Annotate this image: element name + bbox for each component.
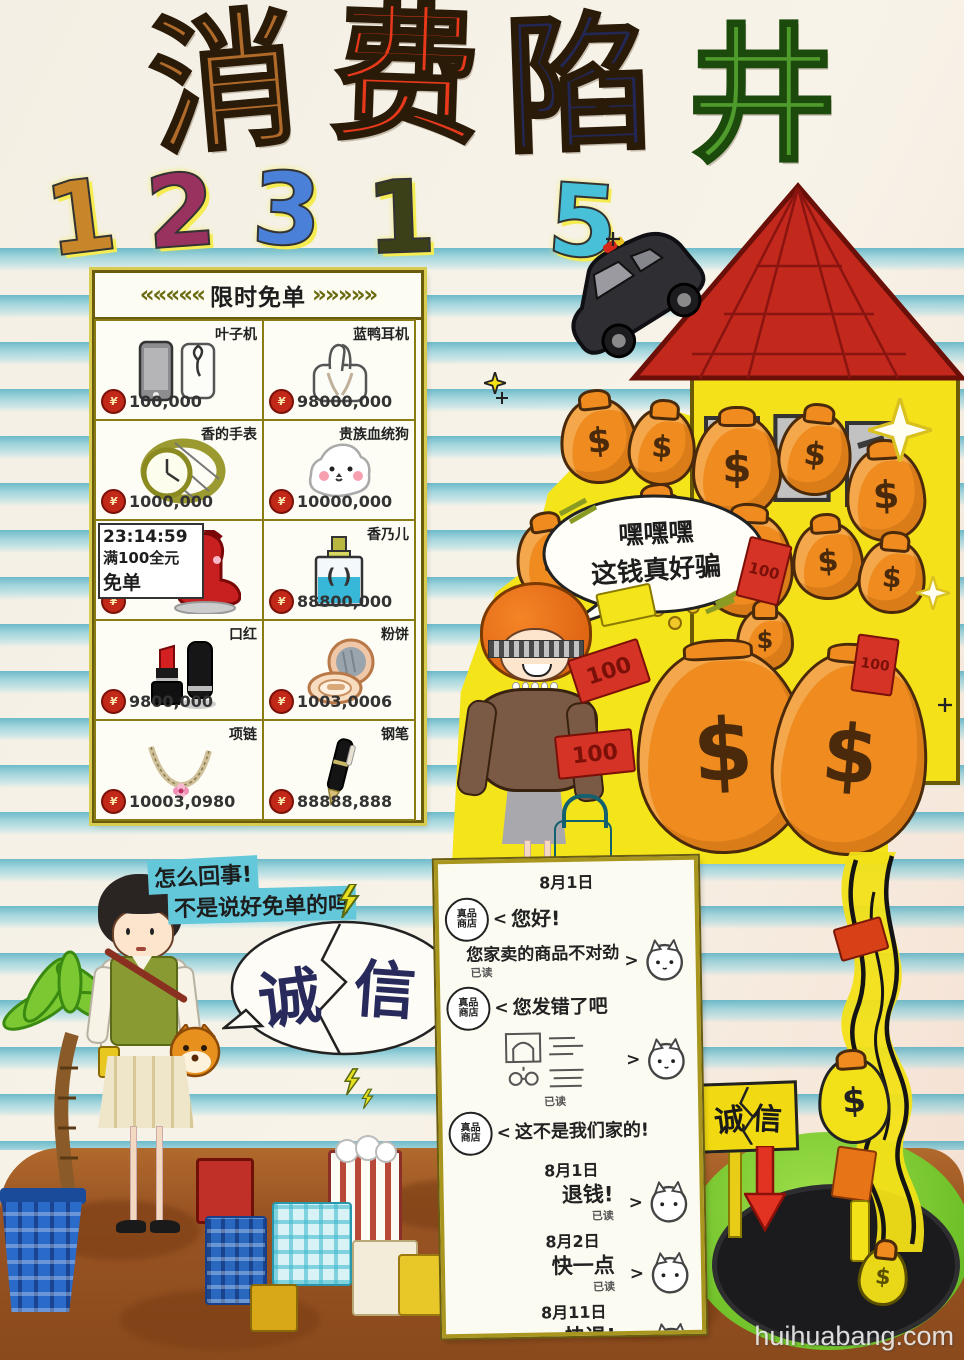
dollar-sign: $ xyxy=(818,705,882,802)
chevron-right: > xyxy=(626,1050,641,1070)
yuan-symbol: ¥ xyxy=(278,395,286,408)
dollar-sign: $ xyxy=(881,560,903,595)
victim-eye xyxy=(126,928,130,935)
cat-avatar-icon xyxy=(645,1038,688,1081)
chat-row-user: 退钱! 已读 > xyxy=(450,1181,691,1227)
sign-post xyxy=(728,1140,742,1238)
flash-sale-title: 限时免单 xyxy=(210,278,306,312)
poster-canvas: 消 费 陷 井 1 2 3 1 5 $ $ $ $ $ $ $ $ $ xyxy=(0,0,964,1360)
hotline-digit-1: 1 xyxy=(40,164,121,272)
read-receipt: 已读 xyxy=(470,965,492,981)
item-price: 88888,888 xyxy=(297,792,392,811)
sale-item-lipstick: 口红 ¥9800,000 xyxy=(94,619,264,721)
chat-row-shop: 真品 商店 < 这不是我们家的! xyxy=(448,1108,693,1156)
banknote-value: 100 xyxy=(859,655,890,675)
victim-skirt xyxy=(98,1056,194,1128)
victim-face xyxy=(112,908,174,960)
chat-date: 8月2日 xyxy=(450,1226,694,1254)
lightning-icon xyxy=(360,1088,375,1110)
victim-eye xyxy=(150,928,154,935)
shop-avatar: 真品 商店 xyxy=(446,986,491,1031)
item-price: 10000,000 xyxy=(297,492,392,511)
chat-msg-not-ours: 这不是我们家的! xyxy=(515,1121,650,1143)
yuan-symbol: ¥ xyxy=(278,595,286,608)
coin-icon: ¥ xyxy=(101,489,126,514)
chat-msg-wrong: 您发错了吧 xyxy=(513,996,608,1019)
countdown-timer: 23:14:59 xyxy=(103,527,199,547)
victim-leg xyxy=(130,1126,137,1226)
watermark: huihuabang.com xyxy=(754,1321,954,1352)
title-char-2: 费 xyxy=(329,0,482,153)
item-name: 钢笔 xyxy=(381,724,409,744)
yuan-symbol: ¥ xyxy=(110,695,118,708)
gift-box-mustard xyxy=(250,1284,298,1332)
arrows-left: ««««« xyxy=(140,282,204,308)
sign-crack xyxy=(738,1087,758,1146)
flash-sale-table: ««««« 限时免单 »»»»» 叶子机 ¥100,000 蓝鸭耳机 xyxy=(92,270,424,823)
item-name: 项链 xyxy=(229,724,257,744)
banknote-value: 100 xyxy=(571,739,619,769)
lightning-icon xyxy=(342,1068,362,1096)
shop-avatar: 真品 商店 xyxy=(445,897,490,942)
title-char-4: 井 xyxy=(688,22,836,170)
dollar-sign: $ xyxy=(691,700,756,803)
gift-box-cyan-plaid xyxy=(272,1202,352,1286)
item-price: 10003,0980 xyxy=(129,792,235,811)
cat-avatar-icon xyxy=(643,939,686,982)
chevron-right: > xyxy=(630,1264,645,1284)
down-arrow xyxy=(744,1146,786,1234)
chat-date: 8月1日 xyxy=(449,1155,693,1183)
title-char-3: 陷 xyxy=(502,9,655,162)
chat-date: 8月1日 xyxy=(444,867,688,895)
hotline-digit-4: 1 xyxy=(364,167,437,269)
hotline-digit-2: 2 xyxy=(143,160,219,265)
chevron-left: < xyxy=(494,998,509,1018)
lightning-icon xyxy=(336,884,362,918)
coin-icon: ¥ xyxy=(269,589,294,614)
integrity-char-left: 诚 xyxy=(253,945,326,1042)
integrity-char-right: 信 xyxy=(351,938,419,1032)
chat-msg-hurry: 快一点 xyxy=(552,1255,615,1279)
banknote-100: 100 xyxy=(554,728,636,780)
scammer-eye-band xyxy=(488,640,584,658)
dollar-sign: $ xyxy=(722,443,751,492)
title-char-1: 消 xyxy=(144,4,304,164)
coin-icon: ¥ xyxy=(269,689,294,714)
chat-row-user: 您家卖的商品不对劲 已读 > xyxy=(445,939,686,985)
item-price: 100,000 xyxy=(129,392,202,411)
chevron-left: < xyxy=(496,1123,511,1143)
item-name: 粉饼 xyxy=(381,624,409,644)
sale-item-free-timer: 23:14:59 满100全元 免单 ¥ xyxy=(94,519,264,621)
shop-avatar: 真品 商店 xyxy=(448,1111,493,1156)
dollar-sign: $ xyxy=(585,420,613,462)
shop-avatar-text: 商店 xyxy=(457,920,477,930)
item-price: 98000,000 xyxy=(297,392,392,411)
item-name: 口红 xyxy=(229,624,257,644)
flash-sale-header: ««««« 限时免单 »»»»» xyxy=(95,273,421,320)
chat-date: 8月11日 xyxy=(452,1297,696,1325)
sale-item-perfume: 香乃儿 ( ) ¥88800,000 xyxy=(262,519,416,621)
sale-item-powder: 粉饼 ¥1003,0006 xyxy=(262,619,416,721)
hotline-digit-3: 3 xyxy=(250,159,323,261)
shop-avatar-text: 商店 xyxy=(458,1009,478,1019)
sale-item-phone: 叶子机 ¥100,000 xyxy=(94,319,264,421)
yuan-symbol: ¥ xyxy=(278,695,286,708)
sale-item-necklace: 项链 ¥10003,0980 xyxy=(94,719,264,821)
dollar-sign: $ xyxy=(874,1264,892,1290)
victim-shoe xyxy=(116,1220,146,1233)
countdown-condition: 满100全元 xyxy=(103,547,199,568)
plaid-flowerpot xyxy=(2,1202,82,1312)
money-stream xyxy=(796,852,964,1262)
chat-msg-hello: 您好! xyxy=(511,907,561,930)
read-receipt: 已读 xyxy=(592,1207,614,1223)
chat-msg-refund: 退钱! xyxy=(562,1184,614,1208)
dollar-sign: $ xyxy=(841,1080,867,1122)
cat-avatar-icon xyxy=(647,1181,690,1224)
coin-icon: ¥ xyxy=(269,389,294,414)
dollar-sign: $ xyxy=(816,543,839,579)
chevron-left: < xyxy=(493,909,508,929)
sale-item-dog: 贵族血统狗 ¥10000,000 xyxy=(262,419,416,521)
victim-shoe xyxy=(150,1220,180,1233)
dollar-sign: $ xyxy=(872,472,901,517)
sale-item-watch: 香的手表 ¥1000,000 xyxy=(94,419,264,521)
chevron-right: > xyxy=(628,1193,643,1213)
coin-icon: ¥ xyxy=(101,689,126,714)
chat-msg-complaint: 您家卖的商品不对劲 xyxy=(466,944,619,965)
chat-row-shop: 真品 商店 < 您发错了吧 xyxy=(446,983,691,1031)
coin-icon: ¥ xyxy=(269,489,294,514)
chat-row-shop: 真品 商店 < 您好! xyxy=(445,894,690,942)
yuan-symbol: ¥ xyxy=(110,795,118,808)
coin-icon: ¥ xyxy=(101,789,126,814)
banknote-value: 100 xyxy=(747,558,782,583)
product-photo-sketches xyxy=(503,1029,622,1093)
dollar-sign: $ xyxy=(650,429,673,465)
victim-mouth xyxy=(136,947,146,951)
broken-integrity-bubble: 诚 信 xyxy=(222,916,460,1066)
falling-banknote xyxy=(831,1145,878,1202)
chat-complaint-paper: 8月1日 真品 商店 < 您好! 您家卖的商品不对劲 已读 > xyxy=(434,856,706,1339)
banknote-100: 100 xyxy=(850,633,900,696)
countdown-box: 23:14:59 满100全元 免单 xyxy=(98,523,204,599)
read-receipt: 已读 xyxy=(544,1091,692,1110)
yuan-symbol: ¥ xyxy=(278,795,286,808)
yuan-symbol: ¥ xyxy=(110,395,118,408)
victim-leg xyxy=(156,1126,163,1226)
flash-sale-grid: 叶子机 ¥100,000 蓝鸭耳机 ¥98000,000 xyxy=(95,320,421,820)
shop-avatar-text: 商店 xyxy=(461,1134,481,1144)
item-price: 1000,000 xyxy=(129,492,213,511)
victim-bangs xyxy=(108,894,174,914)
read-receipt: 已读 xyxy=(593,1278,615,1294)
integrity-sign: 诚 信 xyxy=(697,1080,799,1153)
coin-icon: ¥ xyxy=(269,789,294,814)
perfume-logo: ( ) xyxy=(326,564,351,588)
cat-avatar-icon xyxy=(649,1252,692,1295)
sale-item-earbuds: 蓝鸭耳机 ¥98000,000 xyxy=(262,319,416,421)
yuan-symbol: ¥ xyxy=(110,495,118,508)
chat-row-user: 快一点 已读 > xyxy=(451,1252,692,1298)
dollar-sign: $ xyxy=(802,434,828,474)
victim-girl xyxy=(72,868,232,1240)
yuan-symbol: ¥ xyxy=(278,495,286,508)
falling-gold-bar xyxy=(850,1200,870,1262)
coin-icon: ¥ xyxy=(101,389,126,414)
countdown-label: 免单 xyxy=(103,568,199,595)
sale-item-pen: 钢笔 ¥88888,888 xyxy=(262,719,416,821)
item-price: 1003,0006 xyxy=(297,692,392,711)
item-price: 88800,000 xyxy=(297,592,392,611)
item-price: 9800,000 xyxy=(129,692,213,711)
arrows-right: »»»»» xyxy=(312,282,376,308)
banknote-value: 100 xyxy=(583,652,634,690)
chevron-right: > xyxy=(624,951,639,971)
chat-row-photos: > xyxy=(447,1028,688,1094)
